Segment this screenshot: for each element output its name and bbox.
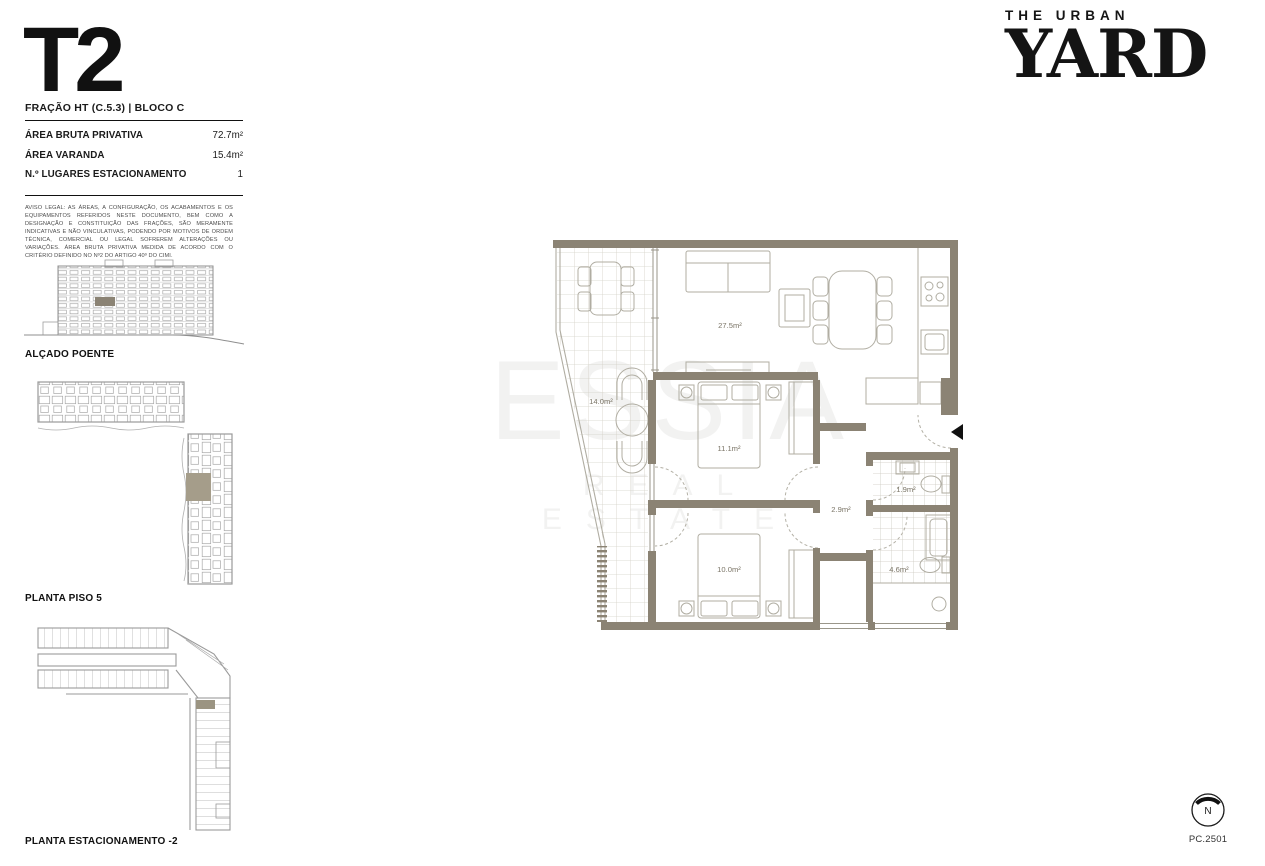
divider — [25, 195, 243, 196]
building-elevation — [24, 260, 244, 344]
wardrobe-icon — [789, 550, 814, 618]
area-value: 1 — [238, 169, 243, 180]
north-compass-icon: N — [1186, 788, 1230, 832]
kitchen-sink-icon — [921, 330, 948, 354]
brand-logo: THE URBAN YARD — [1005, 8, 1227, 85]
nightstand-icon — [679, 601, 781, 616]
area-label: N.º LUGARES ESTACIONAMENTO — [25, 169, 186, 180]
nightstand-icon — [679, 385, 781, 400]
highlighted-parking-spot — [196, 700, 215, 709]
parking-plan-shape — [38, 628, 230, 830]
elevation-drawing — [22, 256, 247, 348]
elevation-label: ALÇADO POENTE — [25, 349, 114, 360]
room-label-bedroom1: 11.1m² — [717, 444, 741, 453]
room-label-wc: 1.9m² — [896, 485, 916, 494]
unit-type-title: T2 — [23, 14, 120, 106]
kitchen-lower-cabinets — [866, 378, 941, 404]
compass: N — [1186, 788, 1230, 837]
area-value: 72.7m² — [213, 130, 244, 141]
legal-disclaimer: AVISO LEGAL: AS ÁREAS, A CONFIGURAÇÃO, O… — [25, 205, 233, 261]
room-label-balcony: 14.0m² — [589, 397, 613, 406]
highlighted-unit — [95, 297, 115, 306]
brand-line2: YARD — [1005, 24, 1227, 85]
parking-label: PLANTA ESTACIONAMENTO -2 — [25, 836, 178, 847]
room-label-living: 27.5m² — [718, 321, 742, 330]
compass-north-label: N — [1204, 806, 1211, 817]
table-row: ÁREA BRUTA PRIVATIVA 72.7m² — [25, 130, 243, 150]
floor5-label: PLANTA PISO 5 — [25, 593, 102, 604]
divider — [25, 120, 243, 121]
entrance-arrow-icon — [951, 424, 963, 440]
floor5-key-plan — [25, 376, 240, 592]
area-table: ÁREA BRUTA PRIVATIVA 72.7m² ÁREA VARANDA… — [25, 130, 243, 189]
floor5-plan-shape — [38, 382, 232, 584]
drawing-code: PC.2501 — [1182, 834, 1234, 845]
area-label: ÁREA VARANDA — [25, 150, 105, 161]
wardrobe-icon — [789, 382, 814, 454]
parking-key-plan — [28, 624, 243, 836]
dining-table-icon — [813, 271, 892, 349]
area-label: ÁREA BRUTA PRIVATIVA — [25, 130, 143, 141]
room-label-bathroom: 4.6m² — [889, 565, 909, 574]
balcony-louver — [597, 546, 607, 622]
bed-icon — [698, 534, 760, 618]
table-row: ÁREA VARANDA 15.4m² — [25, 150, 243, 170]
highlighted-unit — [186, 473, 211, 501]
drain-icon — [932, 597, 946, 611]
sofa-icon — [686, 251, 770, 292]
table-row: N.º LUGARES ESTACIONAMENTO 1 — [25, 169, 243, 189]
armchair-icon — [779, 289, 810, 327]
stove-icon — [921, 277, 948, 306]
room-label-bedroom2: 10.0m² — [717, 565, 741, 574]
main-floor-plan: 27.5m² 14.0m² 11.1m² 2.9m² 1.9m² 10.0m² … — [545, 230, 970, 640]
fraction-subtitle: FRAÇÃO HT (C.5.3) | BLOCO C — [25, 102, 184, 114]
bed-icon — [698, 382, 760, 468]
area-value: 15.4m² — [213, 150, 244, 161]
room-label-hall: 2.9m² — [831, 505, 851, 514]
